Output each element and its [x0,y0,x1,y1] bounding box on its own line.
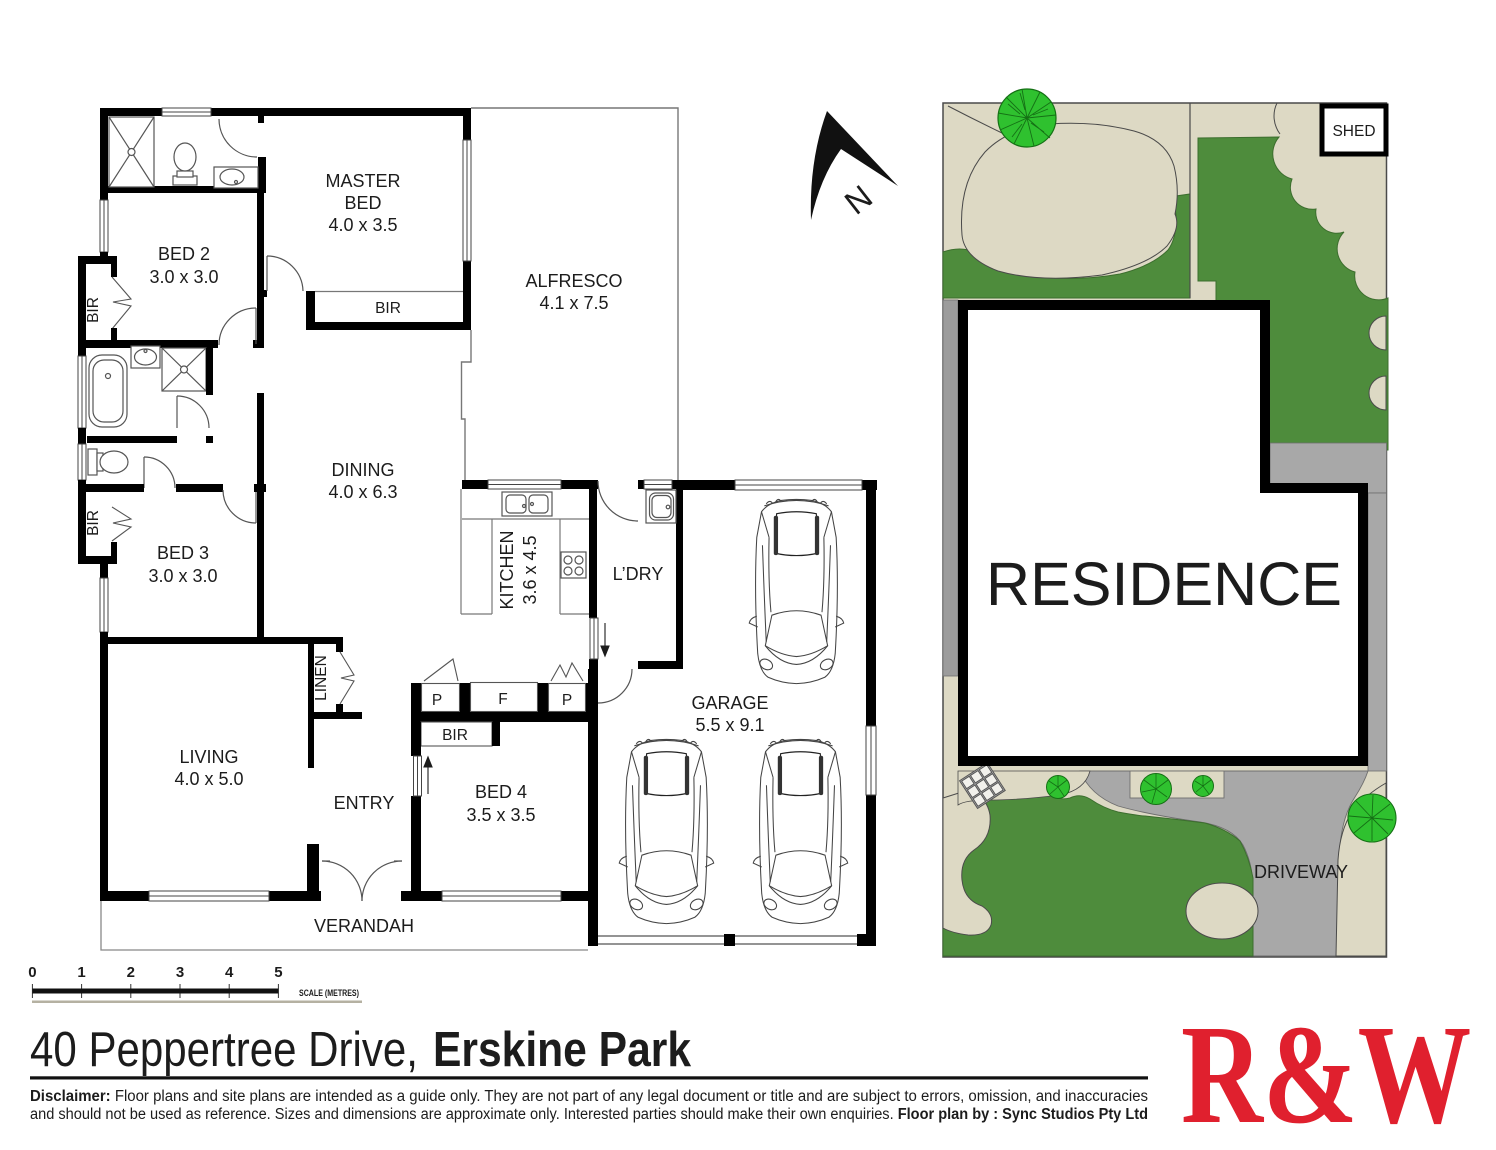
svg-text:5: 5 [274,964,282,981]
svg-text:LIVING: LIVING [179,747,238,767]
svg-text:SCALE (METRES): SCALE (METRES) [299,988,359,998]
svg-text:BED 3: BED 3 [157,543,209,563]
svg-text:RESIDENCE: RESIDENCE [986,550,1342,618]
svg-text:1: 1 [77,964,85,981]
svg-text:3.5 x 3.5: 3.5 x 3.5 [466,805,535,825]
svg-text:3.6 x 4.5: 3.6 x 4.5 [520,535,540,604]
svg-text:40 Peppertree Drive,: 40 Peppertree Drive, [30,1022,418,1077]
svg-text:L’DRY: L’DRY [613,564,664,584]
svg-text:VERANDAH: VERANDAH [314,916,414,936]
svg-text:Disclaimer: Floor plans and si: Disclaimer: Floor plans and site plans a… [30,1088,1148,1105]
svg-text:3: 3 [176,964,184,981]
svg-text:4.0 x 6.3: 4.0 x 6.3 [328,482,397,502]
svg-text:P: P [562,692,572,709]
svg-text:BIR: BIR [442,727,468,744]
svg-text:P: P [432,692,442,709]
svg-text:DRIVEWAY: DRIVEWAY [1254,862,1348,882]
svg-text:BED: BED [344,193,381,213]
svg-text:BIR: BIR [375,300,401,317]
svg-text:BIR: BIR [85,297,102,323]
svg-text:ENTRY: ENTRY [334,793,395,813]
svg-text:4.1 x 7.5: 4.1 x 7.5 [539,293,608,313]
svg-text:4.0 x 5.0: 4.0 x 5.0 [174,769,243,789]
svg-text:BIR: BIR [85,510,102,536]
svg-text:SHED: SHED [1332,123,1375,140]
svg-text:4.0 x 3.5: 4.0 x 3.5 [328,215,397,235]
svg-text:3.0 x 3.0: 3.0 x 3.0 [148,566,217,586]
svg-text:F: F [498,691,507,708]
svg-text:2: 2 [127,964,135,981]
svg-text:and should not be used as refe: and should not be used as reference. Siz… [30,1106,1148,1123]
svg-text:BED 4: BED 4 [475,782,527,802]
svg-text:GARAGE: GARAGE [691,693,768,713]
svg-text:MASTER: MASTER [325,171,400,191]
svg-text:R&W: R&W [1181,995,1471,1150]
svg-text:Erskine Park: Erskine Park [433,1022,691,1077]
svg-text:LINEN: LINEN [313,655,330,701]
svg-text:KITCHEN: KITCHEN [497,530,517,609]
svg-text:DINING: DINING [332,460,395,480]
svg-text:4: 4 [225,964,234,981]
svg-text:ALFRESCO: ALFRESCO [525,271,622,291]
svg-text:BED 2: BED 2 [158,244,210,264]
svg-text:0: 0 [28,964,36,981]
svg-text:3.0 x 3.0: 3.0 x 3.0 [149,267,218,287]
svg-text:5.5 x 9.1: 5.5 x 9.1 [695,715,764,735]
